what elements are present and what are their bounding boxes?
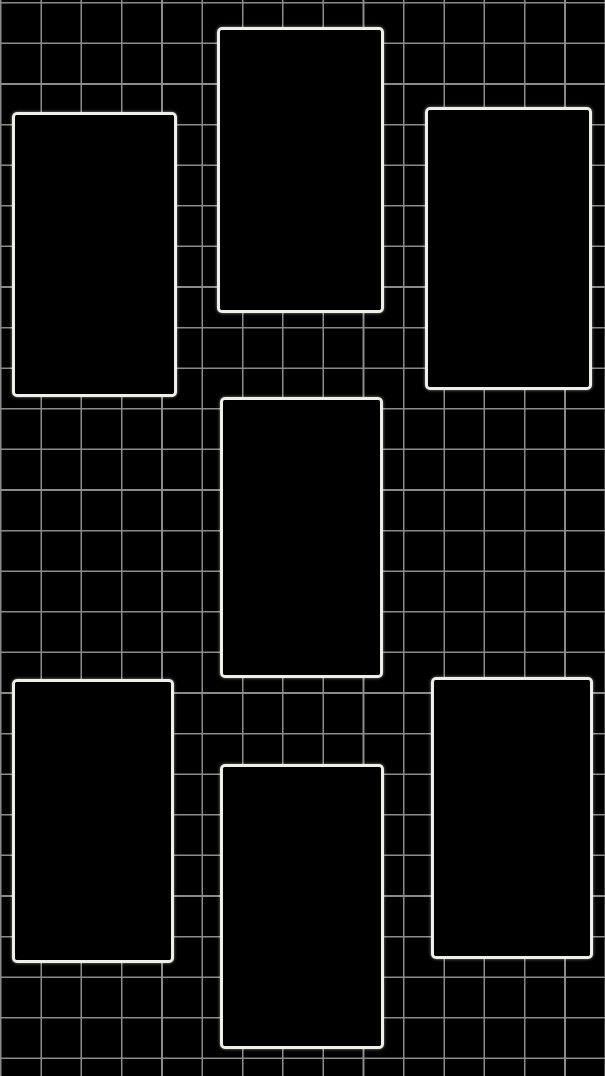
photo-frame-bottom-middle <box>220 764 384 1049</box>
wallpaper-canvas <box>0 0 605 1076</box>
photo-frame-top-left <box>12 112 177 397</box>
photo-frame-bottom-left <box>12 679 174 963</box>
photo-frame-bottom-right <box>431 677 593 959</box>
photo-frame-top-middle <box>217 27 384 313</box>
photo-frame-top-right <box>425 107 592 390</box>
photo-frame-center <box>220 397 383 678</box>
